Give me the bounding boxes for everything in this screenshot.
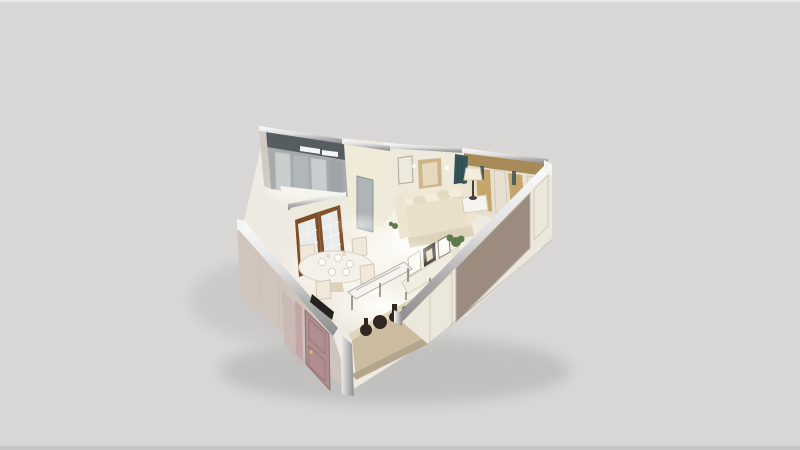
render-canvas <box>0 0 800 450</box>
corner-chrome-post <box>237 219 246 232</box>
cabinet-front <box>329 160 343 197</box>
lamp-shade <box>464 168 482 180</box>
valance-teal-accent <box>512 171 516 185</box>
backdrop-top-edge <box>0 0 800 2</box>
floorplan-render <box>0 0 800 450</box>
entry-sidelight <box>295 300 303 360</box>
backdrop-bottom-edge <box>0 446 800 450</box>
dining-chair <box>316 280 331 300</box>
cabinet-front <box>275 152 291 192</box>
wall-sconce <box>445 166 449 170</box>
artwork <box>422 162 438 186</box>
door-knob <box>309 350 312 353</box>
lamp-base <box>469 196 477 200</box>
wall-sconce <box>412 164 416 168</box>
